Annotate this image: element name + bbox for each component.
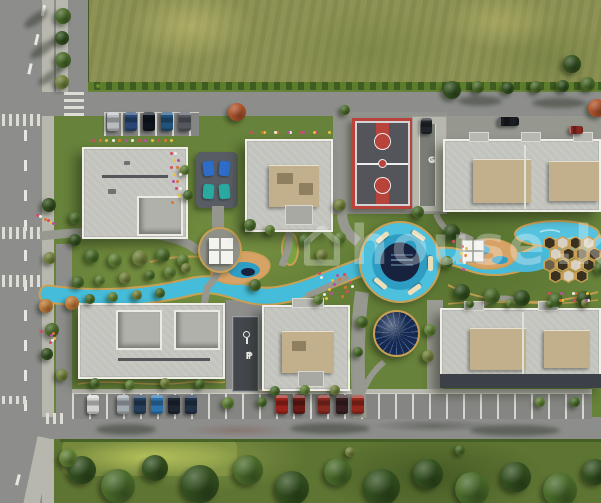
flower-dot — [341, 295, 344, 298]
flower-dot — [40, 330, 43, 333]
flower-dot — [92, 139, 95, 142]
flower-dot — [559, 299, 562, 302]
flower-dot — [105, 139, 108, 142]
flower-dot — [585, 299, 588, 302]
flower-dot — [177, 159, 180, 162]
flower-dot — [176, 166, 179, 169]
flower-dot — [112, 139, 115, 142]
flower-dot — [325, 297, 328, 300]
flower-dot — [175, 187, 178, 190]
flower-dot — [170, 166, 173, 169]
watermark-suffix: .k — [554, 219, 601, 273]
flower-dot — [50, 334, 53, 337]
flower-dot — [586, 292, 589, 295]
flower-dot — [172, 180, 175, 183]
flower-dot — [287, 131, 290, 134]
flower-dot — [125, 139, 128, 142]
flower-dot — [174, 152, 177, 155]
flower-dot — [179, 173, 182, 176]
house-icon — [300, 224, 344, 268]
flower-dot — [131, 139, 134, 142]
flower-dot — [39, 215, 42, 218]
flower-dot — [300, 131, 303, 134]
flower-dot — [330, 292, 333, 295]
flower-dot — [560, 292, 563, 295]
flower-dot — [573, 299, 576, 302]
flower-dot — [328, 131, 331, 134]
flower-dot — [49, 341, 52, 344]
flower-dot — [138, 139, 141, 142]
flower-dot — [157, 139, 160, 142]
flower-dot — [52, 222, 55, 225]
flower-dot — [170, 152, 173, 155]
flower-dot — [164, 139, 167, 142]
flower-dot — [178, 194, 181, 197]
flower-dot — [328, 288, 331, 291]
watermark-text: house — [350, 219, 548, 273]
flower-dot — [173, 159, 176, 162]
flower-dot — [323, 293, 326, 296]
flower-dot — [170, 139, 173, 142]
flower-dot — [151, 139, 154, 142]
flower-dot — [313, 131, 316, 134]
flower-dot — [548, 292, 551, 295]
flower-dot — [274, 131, 277, 134]
flower-dot — [572, 292, 575, 295]
flower-dot — [47, 219, 50, 222]
flower-dot — [144, 139, 147, 142]
flower-dot — [118, 139, 121, 142]
flower-dot — [99, 139, 102, 142]
flower-dot — [261, 131, 264, 134]
flower-dot — [179, 187, 182, 190]
masterplan-scene: G↓ ↑P — [0, 0, 601, 503]
flower-dot — [171, 201, 174, 204]
flower-dot — [346, 290, 349, 293]
watermark: house .k — [300, 204, 601, 288]
flower-dot — [250, 131, 253, 134]
flower-dot — [176, 180, 179, 183]
flower-dot — [173, 173, 176, 176]
